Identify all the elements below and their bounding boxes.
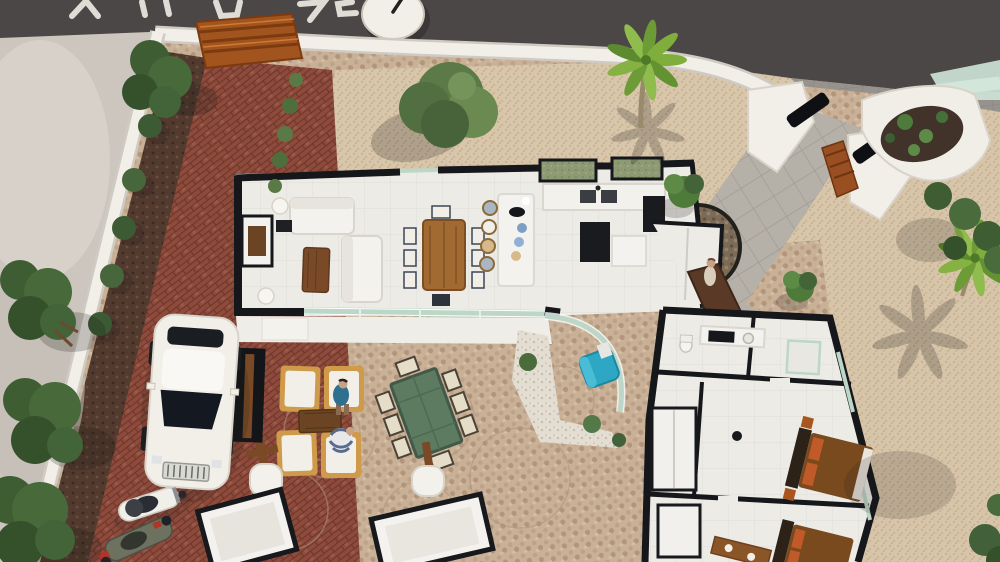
window-planter-1 (540, 160, 596, 181)
render-canvas: Aerial 3D cutaway render of a single-sto… (0, 0, 1000, 562)
patio-coffee-table (299, 409, 342, 432)
shrub (583, 415, 601, 433)
bar-stool (480, 257, 494, 271)
bar-stool (482, 220, 496, 234)
shower (787, 341, 821, 375)
black-sink (708, 330, 735, 342)
bar-stool (481, 239, 495, 253)
sliding-glass-doors (302, 311, 545, 314)
wardrobe (658, 505, 700, 557)
shrub (612, 433, 626, 447)
tall-cabinet (580, 222, 610, 262)
shrub (519, 353, 537, 371)
floor-lamp-1 (272, 198, 288, 214)
car-windshield (158, 390, 222, 430)
scene-svg: Aerial 3D cutaway render of a single-sto… (0, 0, 1000, 562)
bar-stool (483, 201, 497, 215)
lounge-chair (276, 429, 318, 476)
coffee-table (302, 248, 330, 293)
lounge-chair (279, 365, 321, 412)
side-table (276, 220, 292, 232)
corten-trellis (196, 14, 302, 68)
car-grille (162, 462, 209, 481)
floor-lamp-2 (258, 288, 274, 304)
